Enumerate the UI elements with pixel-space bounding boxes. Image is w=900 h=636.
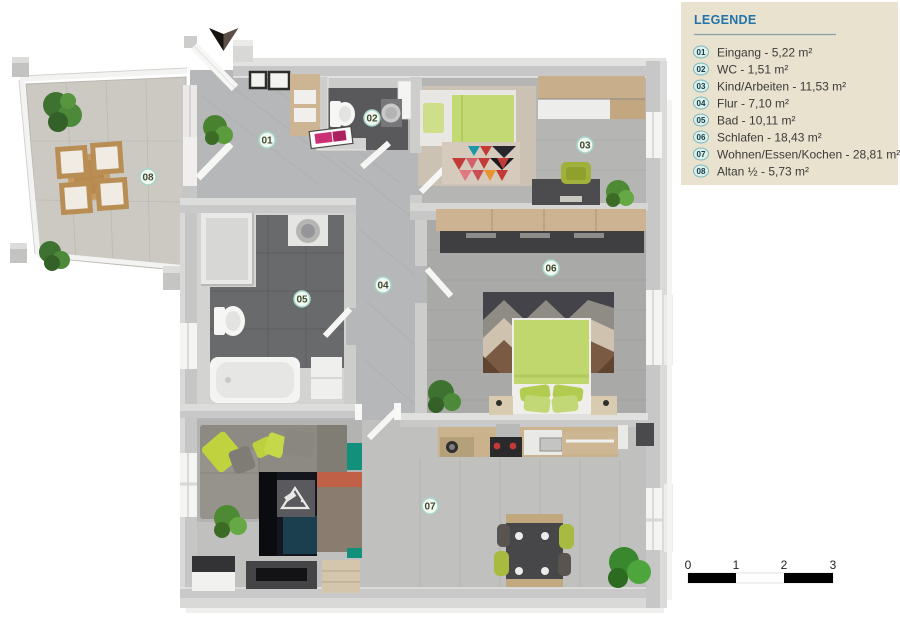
svg-text:1: 1 (733, 558, 740, 572)
svg-text:Altan ½ - 5,73 m²: Altan ½ - 5,73 m² (717, 165, 809, 179)
svg-text:05: 05 (697, 116, 706, 125)
svg-text:03: 03 (697, 82, 706, 91)
svg-text:01: 01 (261, 136, 273, 147)
svg-text:05: 05 (296, 295, 308, 306)
svg-text:Bad - 10,11 m²: Bad - 10,11 m² (717, 114, 795, 128)
svg-text:07: 07 (697, 150, 706, 159)
svg-text:08: 08 (697, 167, 706, 176)
svg-text:3: 3 (830, 558, 837, 572)
svg-text:06: 06 (545, 264, 557, 275)
svg-text:Schlafen - 18,43 m²: Schlafen - 18,43 m² (717, 131, 822, 145)
svg-text:Eingang - 5,22 m²: Eingang - 5,22 m² (717, 46, 812, 60)
svg-text:Flur - 7,10 m²: Flur - 7,10 m² (717, 97, 789, 111)
svg-text:03: 03 (579, 141, 591, 152)
svg-text:Wohnen/Essen/Kochen - 28,81 m²: Wohnen/Essen/Kochen - 28,81 m² (717, 148, 900, 162)
svg-text:02: 02 (366, 114, 378, 125)
svg-text:02: 02 (697, 65, 706, 74)
svg-text:01: 01 (697, 48, 706, 57)
svg-text:0: 0 (685, 558, 692, 572)
svg-text:06: 06 (697, 133, 706, 142)
svg-text:Kind/Arbeiten - 11,53 m²: Kind/Arbeiten - 11,53 m² (717, 80, 846, 94)
svg-text:04: 04 (697, 99, 706, 108)
svg-text:2: 2 (781, 558, 788, 572)
svg-text:04: 04 (377, 281, 389, 292)
svg-text:07: 07 (424, 502, 436, 513)
svg-text:LEGENDE: LEGENDE (694, 13, 757, 27)
svg-text:WC - 1,51 m²: WC - 1,51 m² (717, 63, 788, 77)
svg-text:08: 08 (142, 173, 154, 184)
